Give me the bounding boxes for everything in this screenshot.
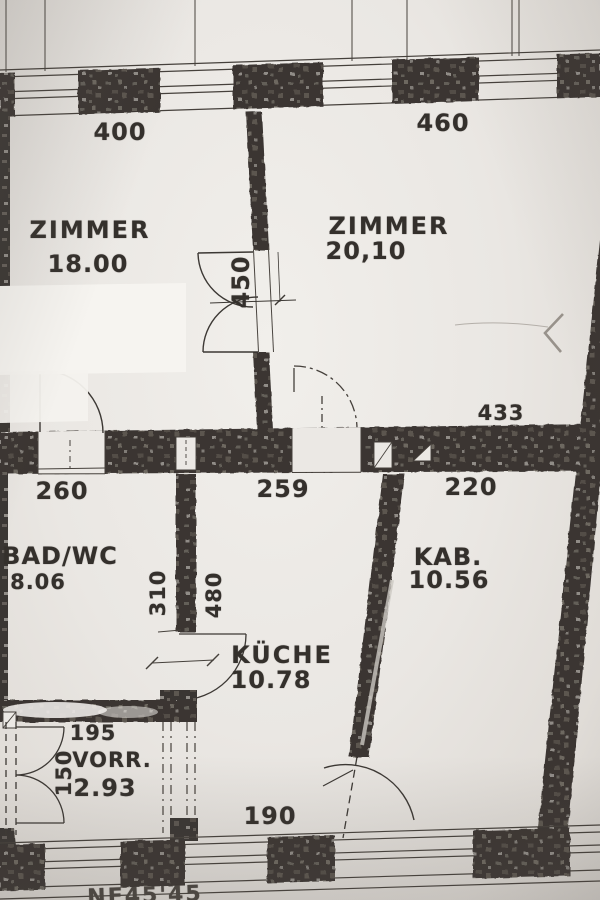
dim-wall-310: 310 bbox=[146, 570, 170, 617]
wall-dimension-ticks bbox=[146, 630, 219, 669]
area-label-zimmer1: 18.00 bbox=[48, 250, 129, 278]
room-label-zimmer1: ZIMMER bbox=[30, 216, 151, 244]
dim-bad-width: 260 bbox=[35, 477, 88, 505]
room-label-zimmer2: ZIMMER bbox=[329, 212, 450, 240]
left-exterior-wall bbox=[0, 112, 16, 846]
area-label-kueche: 10.78 bbox=[231, 666, 312, 694]
kab-slanted-wall bbox=[323, 474, 414, 838]
dim-vorr-width: 195 bbox=[70, 721, 117, 745]
bottom-partial-note: NF45'45 bbox=[87, 881, 203, 900]
corridor-dashed-lines bbox=[163, 722, 195, 833]
dim-vorr-door: 150 bbox=[52, 750, 76, 797]
dim-kueche-width: 259 bbox=[256, 475, 309, 503]
middle-horizontal-wall bbox=[0, 424, 600, 474]
dim-kab-top: 433 bbox=[478, 401, 525, 425]
top-exterior-wall bbox=[0, 50, 600, 117]
masonry-piers-bottom bbox=[0, 828, 570, 891]
kab-door-swing bbox=[323, 757, 414, 838]
dim-door-450: 450 bbox=[227, 255, 255, 308]
dim-kueche-bottom: 190 bbox=[243, 802, 296, 830]
room-label-kueche: KÜCHE bbox=[231, 641, 333, 669]
masonry-piers bbox=[0, 53, 600, 117]
room-label-vorr: VORR. bbox=[72, 748, 151, 772]
area-label-bad: 8.06 bbox=[10, 570, 66, 594]
area-label-zimmer2: 20,10 bbox=[326, 237, 407, 265]
dim-kab-width: 220 bbox=[444, 473, 497, 501]
dim-window-left: 400 bbox=[93, 118, 146, 146]
floor-plan-page: 400 460 ZIMMER 18.00 ZIMMER 20,10 450 43… bbox=[0, 0, 600, 900]
area-label-kab: 10.56 bbox=[409, 566, 490, 594]
dim-window-right: 460 bbox=[416, 109, 469, 137]
pencil-chevron-mark bbox=[455, 314, 563, 352]
room-label-bad: BAD/WC bbox=[2, 542, 118, 570]
area-label-vorr: 2.93 bbox=[73, 774, 136, 802]
zimmer2-door-swing bbox=[294, 366, 357, 432]
dim-wall-480: 480 bbox=[202, 572, 226, 619]
paper-patch bbox=[0, 283, 186, 423]
